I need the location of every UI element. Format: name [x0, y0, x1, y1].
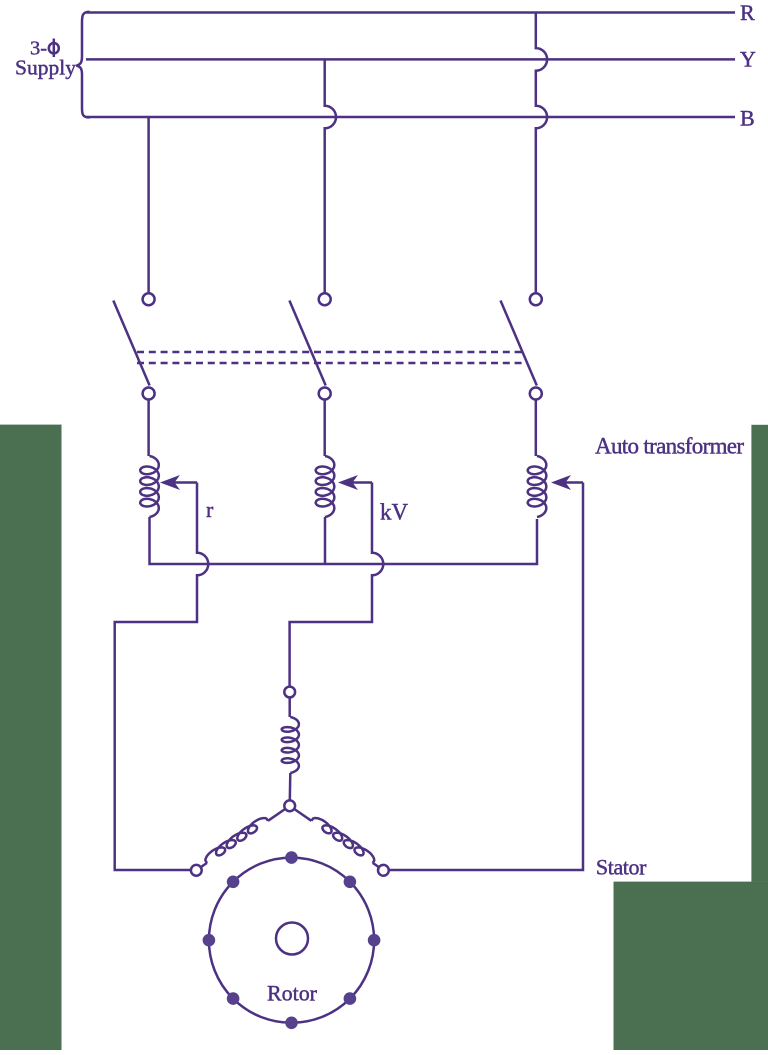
svg-text:Supply: Supply — [15, 56, 76, 80]
svg-text:Y: Y — [740, 47, 756, 72]
svg-text:Auto transformer: Auto transformer — [595, 434, 744, 459]
svg-text:B: B — [740, 105, 755, 130]
svg-text:Stator: Stator — [596, 854, 647, 879]
svg-text:R: R — [740, 0, 755, 25]
svg-text:Rotor: Rotor — [267, 980, 318, 1005]
svg-text:r: r — [206, 497, 214, 522]
svg-text:kV: kV — [380, 500, 409, 525]
